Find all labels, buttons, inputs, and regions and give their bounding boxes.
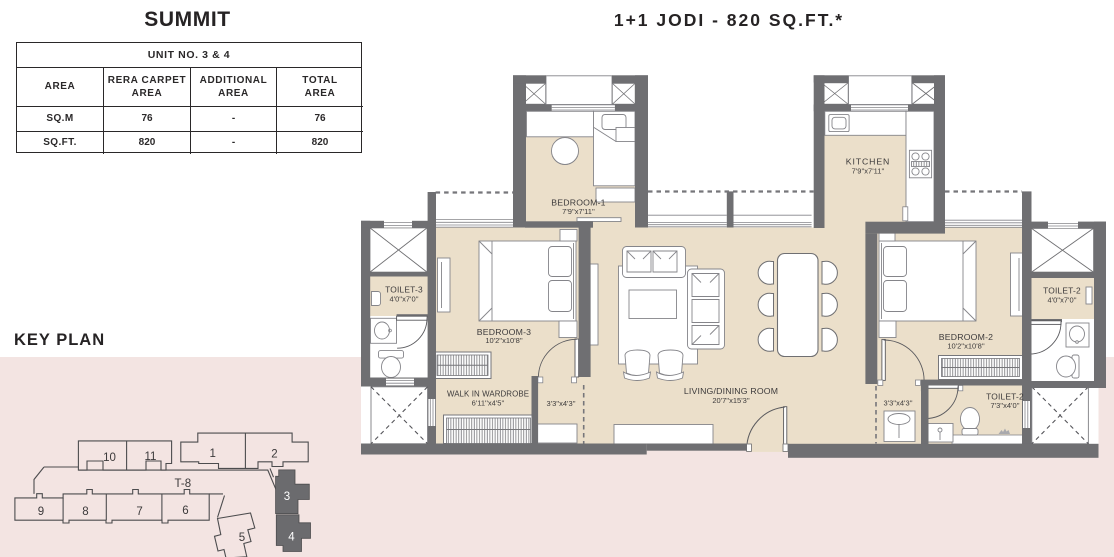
svg-text:4'0''x7'0'': 4'0''x7'0'' xyxy=(1047,296,1077,305)
svg-text:2: 2 xyxy=(271,449,277,461)
svg-text:6: 6 xyxy=(182,505,188,517)
svg-text:BEDROOM-1: BEDROOM-1 xyxy=(551,198,605,208)
svg-text:4: 4 xyxy=(288,532,295,544)
svg-text:T-8: T-8 xyxy=(174,478,191,490)
svg-text:TOILET-3: TOILET-3 xyxy=(385,285,423,295)
svg-text:3: 3 xyxy=(284,491,290,503)
svg-text:BEDROOM-2: BEDROOM-2 xyxy=(939,332,993,342)
svg-text:4'0''x7'0'': 4'0''x7'0'' xyxy=(389,295,419,304)
svg-text:7: 7 xyxy=(136,506,142,518)
svg-text:11: 11 xyxy=(145,451,157,463)
svg-text:8: 8 xyxy=(82,506,88,518)
svg-text:6'11''x4'5'': 6'11''x4'5'' xyxy=(472,399,505,408)
svg-text:10'2''x10'8'': 10'2''x10'8'' xyxy=(485,336,523,345)
svg-text:7'3''x4'0'': 7'3''x4'0'' xyxy=(990,401,1020,410)
svg-text:TOILET-2: TOILET-2 xyxy=(986,392,1024,402)
svg-text:WALK IN WARDROBE: WALK IN WARDROBE xyxy=(447,390,529,399)
svg-text:1: 1 xyxy=(209,448,215,460)
svg-text:10: 10 xyxy=(103,452,116,464)
svg-text:TOILET-2: TOILET-2 xyxy=(1043,286,1081,296)
svg-text:10'2''x10'8'': 10'2''x10'8'' xyxy=(947,342,985,351)
svg-text:7'9''x7'11'': 7'9''x7'11'' xyxy=(562,207,595,216)
svg-text:KITCHEN: KITCHEN xyxy=(846,157,890,167)
svg-text:5: 5 xyxy=(239,532,245,544)
svg-text:7'9''x7'11'': 7'9''x7'11'' xyxy=(852,167,885,176)
svg-text:3'3''x4'3'': 3'3''x4'3'' xyxy=(546,399,576,408)
svg-text:20'7''x15'3'': 20'7''x15'3'' xyxy=(712,396,750,405)
svg-text:LIVING/DINING ROOM: LIVING/DINING ROOM xyxy=(684,386,778,396)
svg-text:9: 9 xyxy=(38,506,44,518)
svg-text:3'3''x4'3'': 3'3''x4'3'' xyxy=(883,399,913,408)
